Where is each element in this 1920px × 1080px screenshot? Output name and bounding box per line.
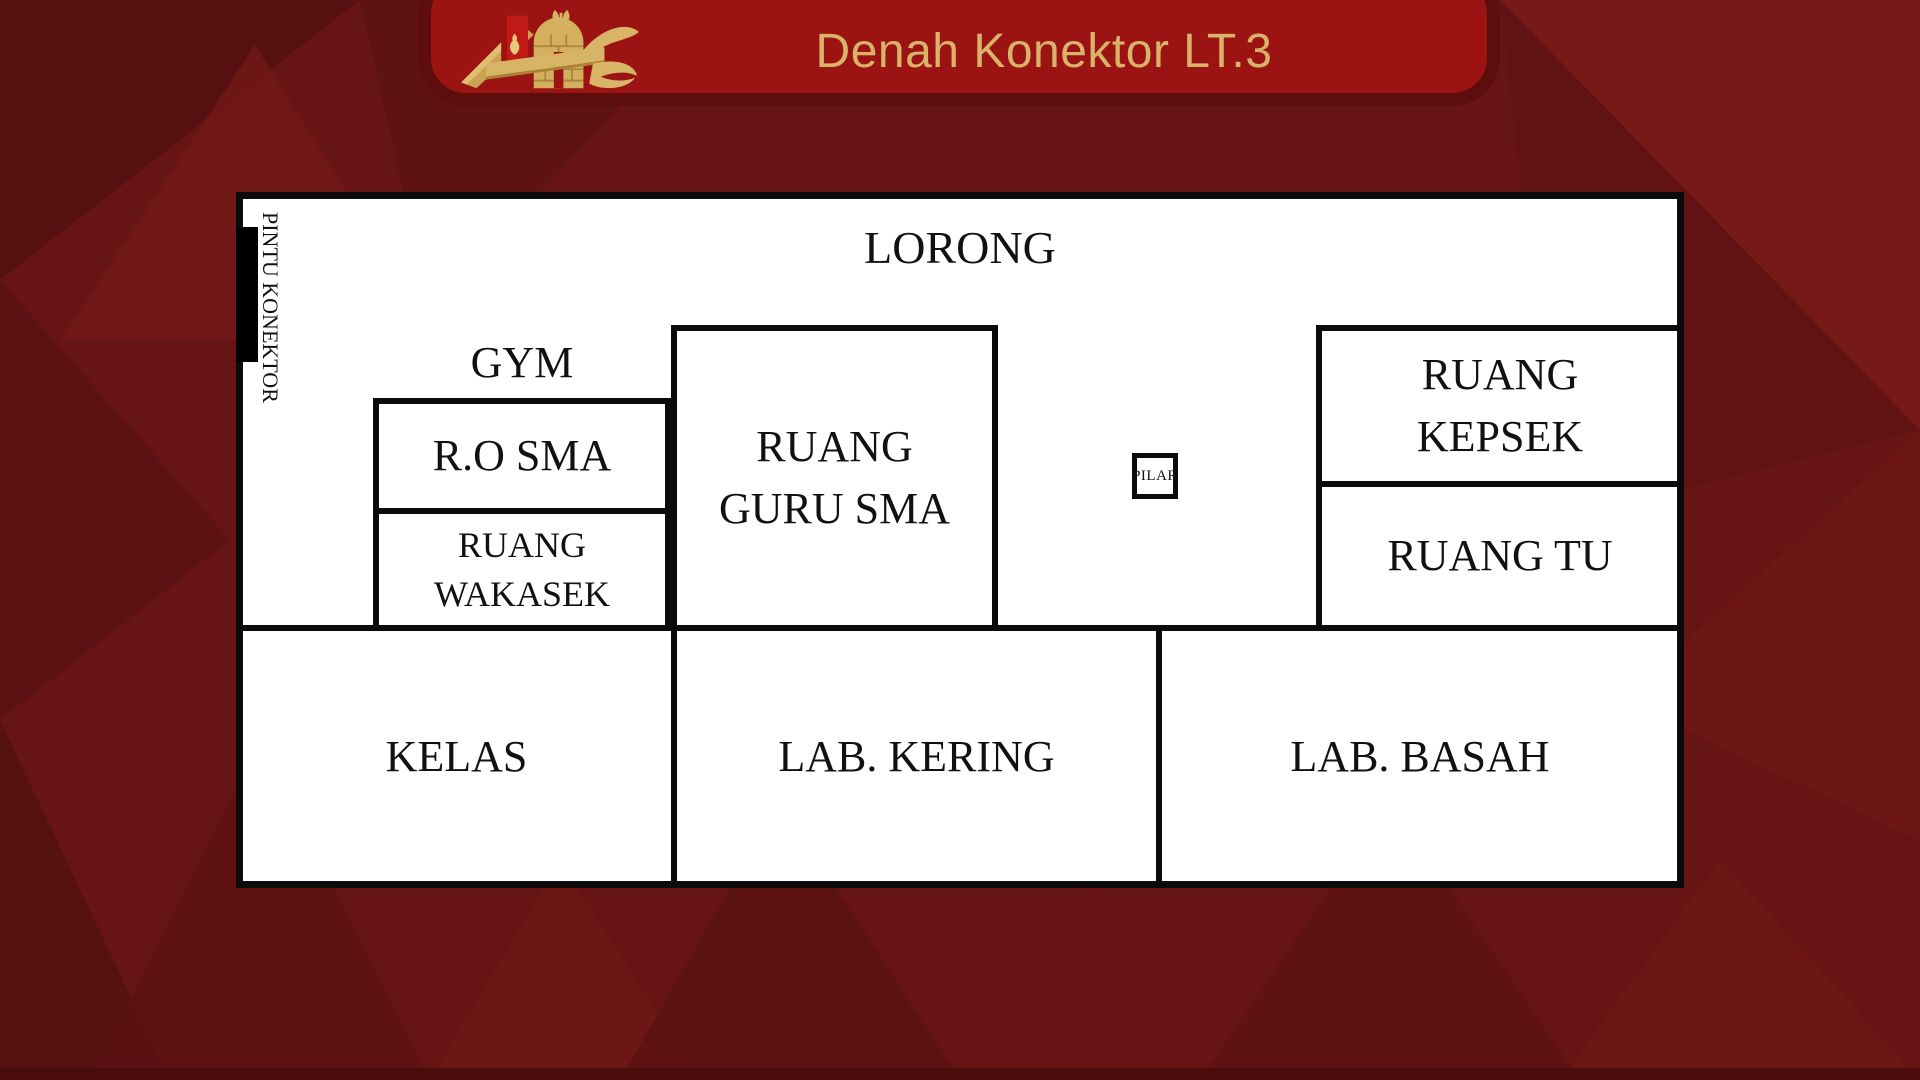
room-ro-sma: R.O SMA [373, 398, 671, 514]
room-ruang-guru-sma: RUANG GURU SMA [671, 325, 998, 631]
floor-plan: LORONG PINTU KONEKTOR GYM R.O SMA RUANG … [236, 192, 1684, 888]
pillar-marker: PILAR [1132, 453, 1178, 499]
room-kelas: KELAS [236, 625, 677, 888]
guru-line2: GURU SMA [719, 484, 950, 533]
school-logo [455, 8, 645, 94]
kepsek-line1: RUANG [1422, 350, 1578, 399]
connector-door [236, 227, 258, 362]
wakasek-line2: WAKASEK [434, 574, 610, 614]
kepsek-line2: KEPSEK [1417, 412, 1583, 461]
room-ruang-kepsek: RUANG KEPSEK [1316, 325, 1684, 487]
room-label-kelas: KELAS [386, 726, 528, 788]
room-lab-kering: LAB. KERING [671, 625, 1162, 888]
page-title: Denah Konektor LT.3 [645, 24, 1457, 79]
room-label-ruang-kepsek: RUANG KEPSEK [1417, 344, 1583, 467]
header-banner: Denah Konektor LT.3 [418, 0, 1500, 106]
guru-line1: RUANG [756, 422, 912, 471]
room-label-ruang-tu: RUANG TU [1387, 525, 1612, 587]
area-label-gym: GYM [373, 337, 671, 388]
pillar-label: PILAR [1132, 466, 1178, 487]
room-ruang-wakasek: RUANG WAKASEK [373, 508, 671, 631]
wakasek-line1: RUANG [458, 525, 586, 565]
room-label-lab-kering: LAB. KERING [778, 726, 1054, 788]
room-label-ruang-guru-sma: RUANG GURU SMA [719, 416, 950, 539]
room-label-ro-sma: R.O SMA [433, 425, 612, 487]
room-label-lab-basah: LAB. BASAH [1290, 726, 1549, 788]
corridor-label-lorong: LORONG [243, 221, 1677, 274]
room-lab-basah: LAB. BASAH [1156, 625, 1684, 888]
connector-door-label: PINTU KONEKTOR [257, 212, 283, 432]
room-label-ruang-wakasek: RUANG WAKASEK [434, 521, 610, 618]
room-ruang-tu: RUANG TU [1316, 481, 1684, 631]
